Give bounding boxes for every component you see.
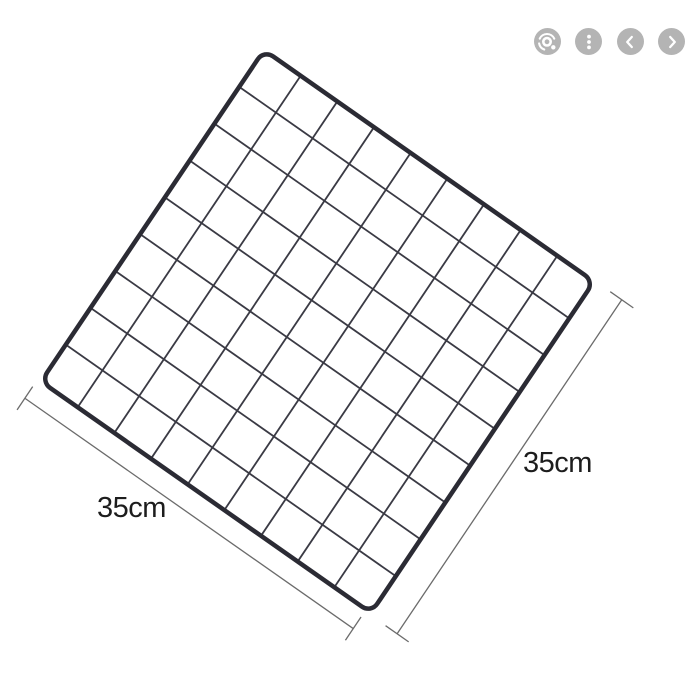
grid-wire: [298, 230, 521, 562]
chevron-right-icon: [660, 30, 684, 54]
grid-wire: [224, 179, 447, 511]
image-toolbar: [534, 28, 686, 55]
dimension-label-right: 35cm: [523, 449, 592, 478]
product-image-viewer: 35cm 35cm: [0, 0, 693, 693]
kebab-menu-icon: [577, 30, 601, 54]
next-image-button[interactable]: [658, 28, 685, 55]
lens-icon: [535, 30, 559, 54]
chevron-left-icon: [618, 30, 642, 54]
dimension-label-bottom: 35cm: [97, 494, 166, 523]
dimension-tick: [610, 292, 633, 308]
grid-wires: [41, 50, 594, 613]
more-options-button[interactable]: [575, 28, 602, 55]
prev-image-button[interactable]: [617, 28, 644, 55]
grid-wire: [78, 76, 301, 408]
grid-wire: [261, 204, 484, 536]
product-image: [0, 0, 693, 693]
grid-wire: [151, 127, 374, 459]
dimension-line-bottom: [25, 398, 353, 628]
dimension-tick: [386, 626, 409, 642]
grid-wire: [188, 153, 411, 485]
dimension-tick: [17, 387, 33, 410]
grid-wire: [114, 101, 337, 433]
visual-search-button[interactable]: [534, 28, 561, 55]
grid-wire: [334, 256, 557, 588]
dimension-tick: [345, 617, 361, 640]
